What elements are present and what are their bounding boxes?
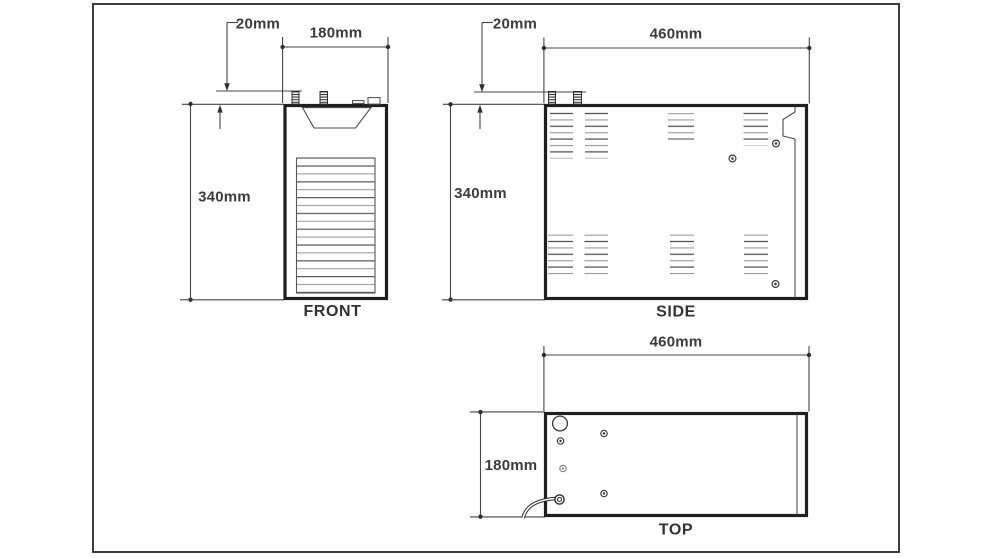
side-length-label: 460mm <box>650 26 703 43</box>
screw-icon <box>729 155 736 162</box>
top-cabinet-outline <box>546 414 807 516</box>
vent-grid <box>550 113 573 159</box>
inlet-fitting-icon <box>549 92 556 105</box>
top-view-label: TOP <box>659 522 693 539</box>
screw-icon <box>601 490 607 496</box>
outlet-fitting-icon <box>574 92 582 105</box>
top-plate-detail <box>353 101 365 104</box>
side-height-dimension: 340mm <box>442 102 545 302</box>
tank-opening-circle <box>553 416 568 431</box>
inlet-fitting-icon <box>292 92 299 105</box>
top-view: 460mm 180mm <box>470 334 811 539</box>
vent-grid <box>585 113 608 159</box>
screw-icon <box>601 430 607 436</box>
vent-grid <box>670 234 694 279</box>
technical-drawing-svg: 180mm 20mm 340mm FRONT <box>0 0 992 558</box>
side-view: 460mm 20mm 340mm <box>442 16 812 321</box>
vent-grid <box>585 233 609 279</box>
screw-icon <box>773 140 780 147</box>
side-view-label: SIDE <box>656 304 696 321</box>
front-height-dimension: 340mm <box>180 102 284 302</box>
front-vent-grille <box>297 158 376 293</box>
front-view-label: FRONT <box>303 303 361 320</box>
front-height-label: 340mm <box>198 189 251 206</box>
vent-grid <box>668 114 694 140</box>
top-length-dimension: 460mm <box>542 334 812 412</box>
front-width-label: 180mm <box>310 25 363 42</box>
outlet-fitting-icon <box>320 92 328 105</box>
front-view: 180mm 20mm 340mm FRONT <box>180 16 390 321</box>
vent-grid <box>744 233 768 279</box>
vent-grid <box>744 113 769 146</box>
top-length-label: 460mm <box>650 334 703 351</box>
top-switch-detail <box>368 98 380 105</box>
screw-icon <box>557 438 563 444</box>
side-offset-label: 20mm <box>493 16 537 33</box>
cable-grommet-icon <box>555 495 564 504</box>
screw-icon <box>772 281 779 288</box>
front-offset-label: 20mm <box>236 16 280 33</box>
drawing-canvas: 180mm 20mm 340mm FRONT <box>0 0 992 558</box>
side-height-label: 340mm <box>454 185 507 202</box>
vent-grid <box>548 233 573 279</box>
top-depth-label: 180mm <box>485 457 538 474</box>
screw-icon <box>560 465 566 471</box>
